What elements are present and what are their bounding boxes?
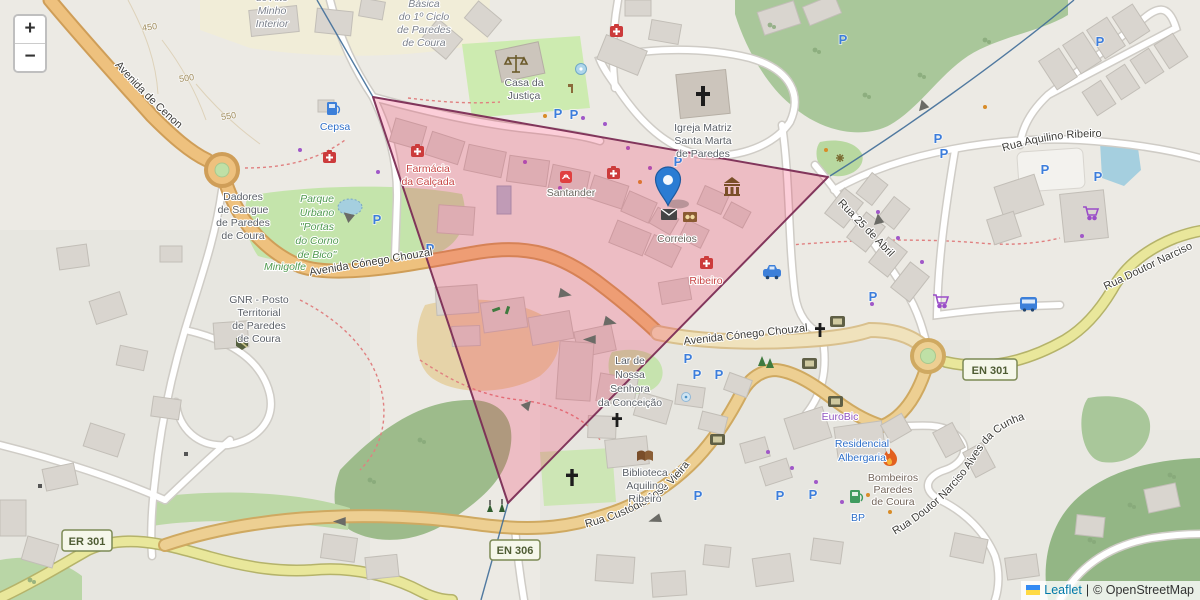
library-book-icon xyxy=(637,451,653,462)
bus-icon xyxy=(1020,297,1037,312)
attribution-bar: Leaflet | © OpenStreetMap xyxy=(1021,581,1200,600)
poi-label-santander: Santander xyxy=(547,187,596,199)
poi-label-cepsa: Cepsa xyxy=(320,121,351,133)
svg-text:Paredes: Paredes xyxy=(873,484,912,496)
poi-label-igreja: Igreja Matriz Santa Marta de Paredes xyxy=(674,122,732,160)
parking-icon: P xyxy=(1094,169,1103,184)
svg-text:de Paredes: de Paredes xyxy=(216,217,270,229)
svg-text:GNR - Posto: GNR - Posto xyxy=(229,294,289,306)
svg-text:de Paredes: de Paredes xyxy=(232,320,286,332)
svg-text:Santa Marta: Santa Marta xyxy=(674,135,731,147)
attribution-divider: | xyxy=(1086,583,1089,597)
roundabout-east xyxy=(912,340,944,372)
svg-text:do 1º Ciclo: do 1º Ciclo xyxy=(399,11,450,23)
svg-text:de Coura: de Coura xyxy=(871,496,914,508)
svg-text:da Conceição: da Conceição xyxy=(598,397,662,409)
contour-label-450: 450 xyxy=(141,21,157,33)
shield-en306: EN 306 xyxy=(490,540,540,560)
svg-text:Senhora: Senhora xyxy=(610,383,650,395)
svg-text:Casa da: Casa da xyxy=(504,77,543,89)
shield-en301: EN 301 xyxy=(963,359,1017,380)
poi-label-correios: Correios xyxy=(657,233,697,245)
map-canvas[interactable]: P P P P P P P P P P P P P P P P P P EN 3… xyxy=(0,0,1200,600)
parking-icon: P xyxy=(554,106,563,121)
svg-text:"Portas: "Portas xyxy=(300,221,335,233)
svg-text:Justiça: Justiça xyxy=(508,90,541,102)
svg-text:do Corno: do Corno xyxy=(295,235,338,247)
leaflet-link[interactable]: Leaflet xyxy=(1044,583,1082,597)
svg-text:Minho: Minho xyxy=(258,5,287,17)
garden-icon xyxy=(836,154,844,162)
parking-icon: P xyxy=(373,212,382,227)
post-office-icon xyxy=(661,209,677,220)
svg-text:Dadores: Dadores xyxy=(223,191,263,203)
parking-icon: P xyxy=(809,487,818,502)
svg-text:Aquilino: Aquilino xyxy=(626,480,664,492)
svg-text:Interior: Interior xyxy=(256,18,289,30)
svg-text:Ribeiro: Ribeiro xyxy=(628,493,661,505)
poi-label-dadores: Dadores de Sangue de Paredes de Coura xyxy=(216,191,270,242)
svg-text:Nossa: Nossa xyxy=(615,369,645,381)
parking-icon: P xyxy=(694,488,703,503)
osm-attribution: © OpenStreetMap xyxy=(1093,583,1194,597)
svg-text:Territorial: Territorial xyxy=(237,307,280,319)
svg-text:Igreja Matriz: Igreja Matriz xyxy=(674,122,732,134)
parking-icon: P xyxy=(934,131,943,146)
svg-text:Urbano: Urbano xyxy=(300,207,335,219)
poi-label-bombeiros: Bombeiros Paredes de Coura xyxy=(868,472,918,508)
parking-icon: P xyxy=(684,351,693,366)
map-tiles: P P P P P P P P P P P P P P P P P P EN 3… xyxy=(0,0,1200,600)
svg-text:EN 306: EN 306 xyxy=(497,545,534,557)
svg-text:ER 301: ER 301 xyxy=(69,536,106,548)
svg-text:de Coura: de Coura xyxy=(221,230,264,242)
parking-icon: P xyxy=(693,367,702,382)
roundabout-west xyxy=(206,154,238,186)
poi-label-gnr: GNR - Posto Territorial de Paredes de Co… xyxy=(229,294,289,345)
svg-text:EN 301: EN 301 xyxy=(972,365,1009,377)
svg-text:de Coura: de Coura xyxy=(237,333,280,345)
santander-bank-icon xyxy=(560,171,572,183)
ukraine-flag-icon xyxy=(1026,585,1040,595)
svg-text:Farmácia: Farmácia xyxy=(406,163,450,175)
zoom-in-button[interactable]: + xyxy=(15,16,45,44)
poi-label-ribeiro: Ribeiro xyxy=(689,275,722,287)
poi-label-eurobic: EuroBic xyxy=(822,411,859,423)
poi-label-parque: Parque Urbano "Portas do Corno de Bico" xyxy=(295,193,338,261)
zoom-control: + − xyxy=(13,14,47,73)
svg-text:Albergaria: Albergaria xyxy=(838,452,886,464)
svg-text:de Paredes: de Paredes xyxy=(676,148,730,160)
zoom-out-button[interactable]: − xyxy=(15,44,45,71)
svg-text:de Paredes: de Paredes xyxy=(397,24,451,36)
contour-label-550: 550 xyxy=(220,110,236,122)
svg-text:Biblioteca: Biblioteca xyxy=(622,467,668,479)
contour-label-500: 500 xyxy=(178,72,194,84)
poi-label-casa-justica: Casa da Justiça xyxy=(504,77,543,102)
svg-text:de Sangue: de Sangue xyxy=(218,204,269,216)
svg-text:do Alto: do Alto xyxy=(256,0,288,4)
coins-icon xyxy=(683,212,697,222)
parking-icon: P xyxy=(715,367,724,382)
parking-icon: P xyxy=(1041,162,1050,177)
poi-label-biblioteca: Biblioteca Aquilino Ribeiro xyxy=(622,467,668,505)
svg-text:de Bico": de Bico" xyxy=(298,249,338,261)
parking-icon: P xyxy=(776,488,785,503)
poi-label-farmacia: Farmácia da Calçada xyxy=(401,163,454,188)
svg-text:Bombeiros: Bombeiros xyxy=(868,472,918,484)
svg-text:da Calçada: da Calçada xyxy=(401,176,454,188)
svg-text:Residencial: Residencial xyxy=(835,438,889,450)
svg-text:Básica: Básica xyxy=(408,0,440,10)
shield-er301: ER 301 xyxy=(62,530,112,551)
poi-label-bp: BP xyxy=(851,512,865,524)
svg-text:de Coura: de Coura xyxy=(402,37,445,49)
parking-icon: P xyxy=(570,107,579,122)
parking-icon: P xyxy=(839,32,848,47)
poi-label-minigolfe: Minigolfe xyxy=(264,261,306,273)
parking-icon: P xyxy=(940,146,949,161)
svg-text:Lar de: Lar de xyxy=(615,355,645,367)
parking-icon: P xyxy=(869,289,878,304)
svg-text:Parque: Parque xyxy=(300,193,334,205)
parking-icon: P xyxy=(1096,34,1105,49)
poi-label-school-left: do Alto Minho Interior xyxy=(256,0,289,30)
